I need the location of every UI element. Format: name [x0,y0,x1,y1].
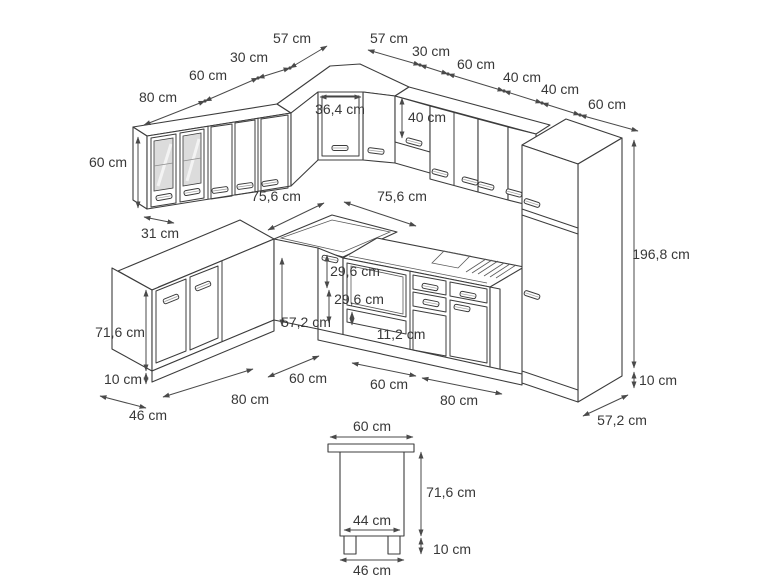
corner-wall-cabinet [277,64,409,186]
hood-wall-cabinet [395,96,430,173]
dim-wall-right-57: 57 cm [370,30,408,46]
dim-depth-left: 46 cm [129,407,167,423]
left-base-cabinet-run [112,220,274,382]
door-handle [332,146,348,151]
dim-depth-right: 57,2 cm [597,412,647,428]
dim-base-60-right: 60 cm [370,376,408,392]
dim-base-height: 71,6 cm [95,324,145,340]
right-base-cabinet-run [318,238,524,385]
dim-corner-drawer-a: 29,6 cm [330,263,380,279]
dim-wall-right-60: 60 cm [457,56,495,72]
dim-plinth-left: 10 cm [104,371,142,387]
dim-hood-height: 40 cm [408,109,446,125]
dim-wall-left-80: 80 cm [139,89,177,105]
dim-base-60-left: 60 cm [289,370,327,386]
dim-wall-right-60-tall: 60 cm [588,96,626,112]
dim-clearance-right: 75,6 cm [377,188,427,204]
dim-wall-right-30: 30 cm [412,43,450,59]
dim-base-80-right: 80 cm [440,392,478,408]
dim-sideview-body-height: 71,6 cm [426,484,476,500]
dim-wall-left-30: 30 cm [230,49,268,65]
wall-cabinet-40a [478,119,508,200]
kitchen-dimension-diagram: 80 cm 60 cm 30 cm 57 cm 57 cm 30 cm 60 c… [0,0,770,578]
dim-sideview-counter-depth: 60 cm [353,418,391,434]
dim-clearance-left: 75,6 cm [251,188,301,204]
dim-base-80-left: 80 cm [231,391,269,407]
dim-wall-height: 60 cm [89,154,127,170]
dim-sideview-base-depth: 46 cm [353,562,391,578]
base-cabinet-side-view: 60 cm 71,6 cm 44 cm 10 cm 46 cm [328,418,476,578]
dim-tall-height: 196,8 cm [632,246,690,262]
dim-corner-drawer-b: 29,6 cm [334,291,384,307]
dim-sideview-plinth-height: 10 cm [433,541,471,557]
dim-corner-door-width: 36,4 cm [315,101,365,117]
dim-plinth-right: 10 cm [639,372,677,388]
dim-wall-left-60: 60 cm [189,67,227,83]
dim-wall-right-40b: 40 cm [541,81,579,97]
dim-sideview-inner-width: 44 cm [353,512,391,528]
dim-base-front-height: 57,2 cm [281,314,331,330]
dim-oven-drawer: 11,2 cm [377,326,426,342]
dim-wall-left-57: 57 cm [273,30,311,46]
dim-wall-right-40a: 40 cm [503,69,541,85]
diagram-canvas: 80 cm 60 cm 30 cm 57 cm 57 cm 30 cm 60 c… [0,0,770,578]
tall-cabinet [522,119,622,402]
dim-wall-depth: 31 cm [141,225,179,241]
